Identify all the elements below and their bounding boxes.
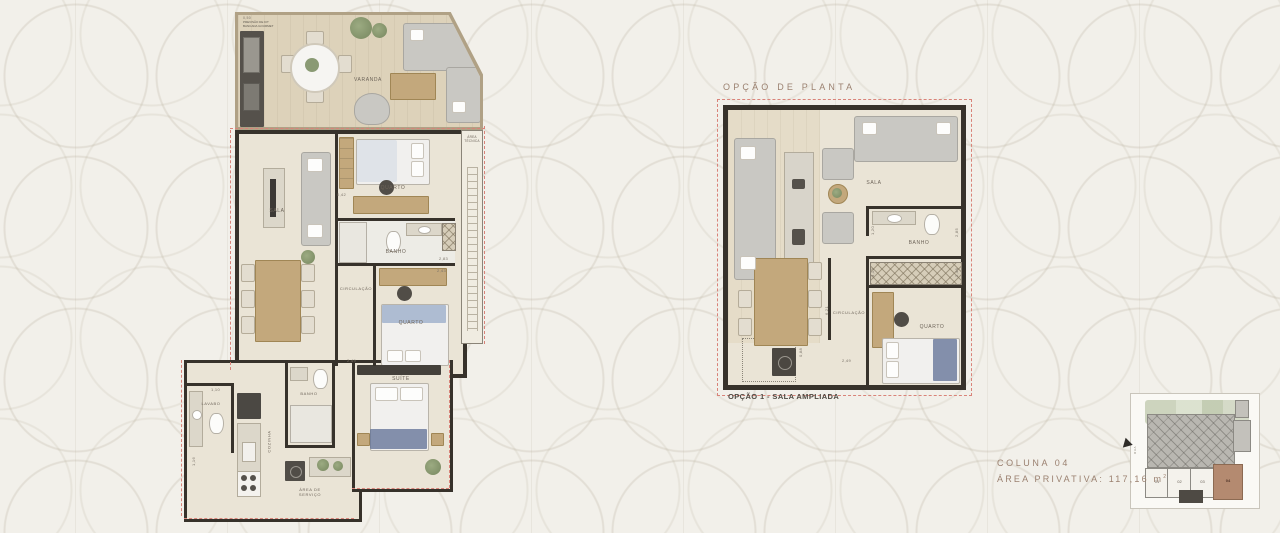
bed-pillow [400, 387, 423, 401]
suite-tv-dresser [357, 365, 441, 375]
suite-wing: SUÍTE [352, 360, 453, 492]
quarto1-dresser [339, 137, 354, 189]
wall [285, 363, 288, 447]
dining-chair [241, 264, 255, 282]
room-label-circulacao: CIRCULAÇÃO [336, 286, 376, 291]
dimension-label: 1,10 [211, 387, 220, 392]
main-floorplan: 0,50 PREVISÃO DE KIT BANCADA GOURMET [180, 8, 490, 523]
street-label: RUA [1133, 446, 1137, 454]
unit-04-highlighted: 04 [1213, 464, 1243, 500]
room-label-quarto1: QUARTO [371, 185, 415, 191]
sofa-pillow [307, 224, 323, 238]
bed-pillow [405, 350, 421, 362]
service-plant [333, 461, 343, 471]
building-roof [1147, 414, 1235, 468]
option-dashed-boundary [717, 99, 972, 396]
room-label-varanda: VARANDA [338, 77, 398, 83]
wall [335, 263, 455, 266]
varanda-plant [350, 17, 372, 39]
banho1-closet [442, 223, 456, 251]
dashed-boundary [449, 360, 450, 488]
dining-chair [301, 316, 315, 334]
stove [237, 471, 261, 497]
room-label-area-tecnica: ÁREA TÉCNICA [462, 135, 482, 143]
washer [285, 461, 305, 481]
area-tecnica-line2: TÉCNICA [462, 139, 482, 143]
room-label-banho1: BANHO [374, 249, 418, 255]
gourmet-kitchenette [240, 31, 264, 127]
unit-02-label: 02 [1168, 479, 1191, 484]
north-arrow-icon [1119, 438, 1131, 450]
dimension-label: 2,49 [347, 358, 356, 363]
dining-chair [301, 264, 315, 282]
unit-03-label: 03 [1191, 479, 1214, 484]
column-label: COLUNA 04 [997, 458, 1070, 468]
area-tecnica: ÁREA TÉCNICA [461, 130, 483, 344]
private-area-label: ÁREA PRIVATIVA: 117,16 m2 [997, 474, 1168, 484]
stair-core [1179, 490, 1203, 503]
dining-chair [301, 290, 315, 308]
nightstand [431, 433, 444, 446]
main-body: SALA [235, 130, 467, 378]
dining-chair [241, 316, 255, 334]
sala-plant [301, 250, 315, 264]
dashed-boundary [181, 360, 182, 516]
room-label-area-servico: ÁREA DE SERVIÇO [287, 487, 333, 497]
suite-plant [425, 459, 441, 475]
private-area-text: ÁREA PRIVATIVA: 117,16 m [997, 474, 1163, 484]
varanda-floor: 0,50 PREVISÃO DE KIT BANCADA GOURMET [238, 15, 480, 127]
room-label-suite: SUÍTE [379, 376, 423, 382]
round-dining-table [290, 43, 340, 93]
bed-pillow [387, 350, 403, 362]
dashed-boundary-bottom [184, 518, 354, 519]
dashed-boundary-left [230, 130, 231, 370]
wall [335, 218, 455, 221]
wall [373, 266, 376, 366]
desk-chair [397, 286, 412, 301]
varanda-armchair [354, 93, 390, 125]
room-label-quarto2: QUARTO [389, 320, 433, 326]
wall [231, 383, 234, 453]
quarto1-desk [353, 196, 429, 214]
private-area-dashed-line [230, 128, 485, 129]
banho1-floor: BANHO [338, 221, 455, 263]
banho2-shower [290, 405, 332, 443]
sofa-pillow [307, 158, 323, 172]
building-annex [1235, 400, 1249, 418]
dimension-label: 0,42 [337, 192, 346, 197]
room-label-sala: SALA [257, 208, 297, 214]
dimension-label: 1,16 [191, 457, 196, 466]
lavabo-sink [189, 391, 203, 447]
service-plant [317, 459, 329, 471]
site-plan: 01 02 03 04 RUA [1130, 393, 1260, 509]
option-title: OPÇÃO DE PLANTA [723, 82, 855, 92]
wall [335, 266, 338, 366]
wall [285, 445, 335, 448]
varanda-chair [338, 55, 352, 73]
option-caption: OPÇÃO 1 - SALA AMPLIADA [728, 392, 839, 401]
varanda-railing: 0,50 PREVISÃO DE KIT BANCADA GOURMET [235, 12, 483, 130]
note-line-2: BANCADA GOURMET [243, 25, 287, 29]
wall [187, 383, 233, 386]
varanda-sofa-chaise [446, 67, 481, 123]
building-annex [1233, 420, 1251, 452]
sofa-pillow [452, 101, 466, 113]
gourmet-counter-note: PREVISÃO DE KIT BANCADA GOURMET [243, 21, 287, 29]
dimension-label: 2,83 [439, 256, 448, 261]
room-label-banho2: BANHO [289, 391, 329, 396]
area-servico-line2: SERVIÇO [287, 492, 333, 497]
wall [332, 363, 335, 448]
technical-ladder [467, 167, 478, 331]
wall [335, 134, 338, 266]
banho2-sink [290, 367, 308, 381]
banho1-shower [339, 222, 367, 263]
refrigerator [237, 393, 261, 419]
sofa-pillow [410, 29, 424, 41]
banho1-sink [406, 223, 442, 236]
room-label-cozinha: COZINHA [267, 422, 272, 462]
service-counter [309, 457, 351, 477]
dashed-boundary-right [484, 126, 485, 344]
bed-throw [370, 429, 427, 449]
dashed-boundary [352, 488, 449, 489]
floorplan-sheet: 0,50 PREVISÃO DE KIT BANCADA GOURMET [0, 0, 1280, 533]
banho2-toilet [313, 369, 328, 389]
bed-pillow [411, 143, 424, 159]
dining-chair [241, 290, 255, 308]
bed-pillow [411, 161, 424, 177]
dimension-label: 2,43 [437, 268, 446, 273]
lavabo-toilet [209, 413, 224, 434]
private-area-sup: 2 [1163, 474, 1168, 480]
room-label-lavabo: LAVABO [193, 401, 229, 406]
nightstand [357, 433, 370, 446]
service-wing: LAVABO 1,10 1,16 COZINHA BANHO [184, 360, 362, 522]
bed-pillow [375, 387, 398, 401]
dining-table [255, 260, 301, 342]
tv-console [263, 168, 285, 228]
varanda-plant [372, 23, 387, 38]
unit-04-label: 04 [1214, 478, 1242, 483]
